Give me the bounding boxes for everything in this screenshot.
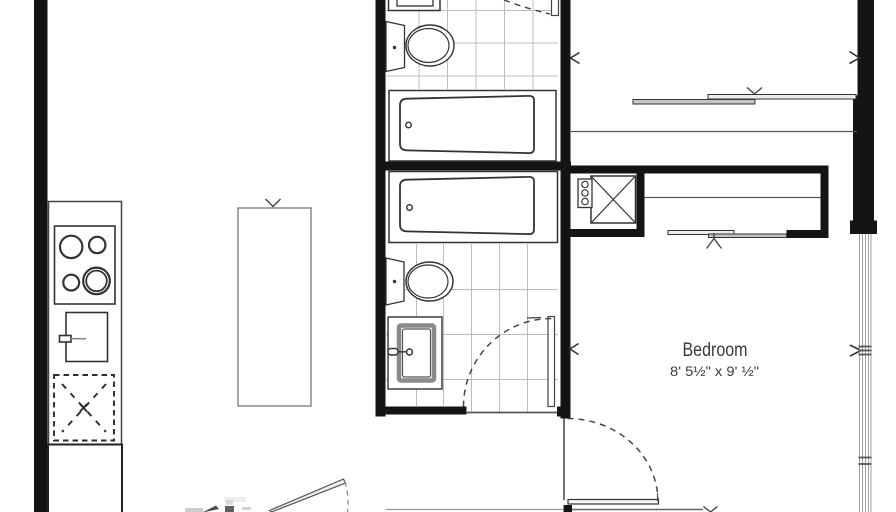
svg-text:Bedroom: Bedroom [683, 340, 748, 361]
svg-text:8' 5½" x 9' ½": 8' 5½" x 9' ½" [670, 363, 759, 379]
